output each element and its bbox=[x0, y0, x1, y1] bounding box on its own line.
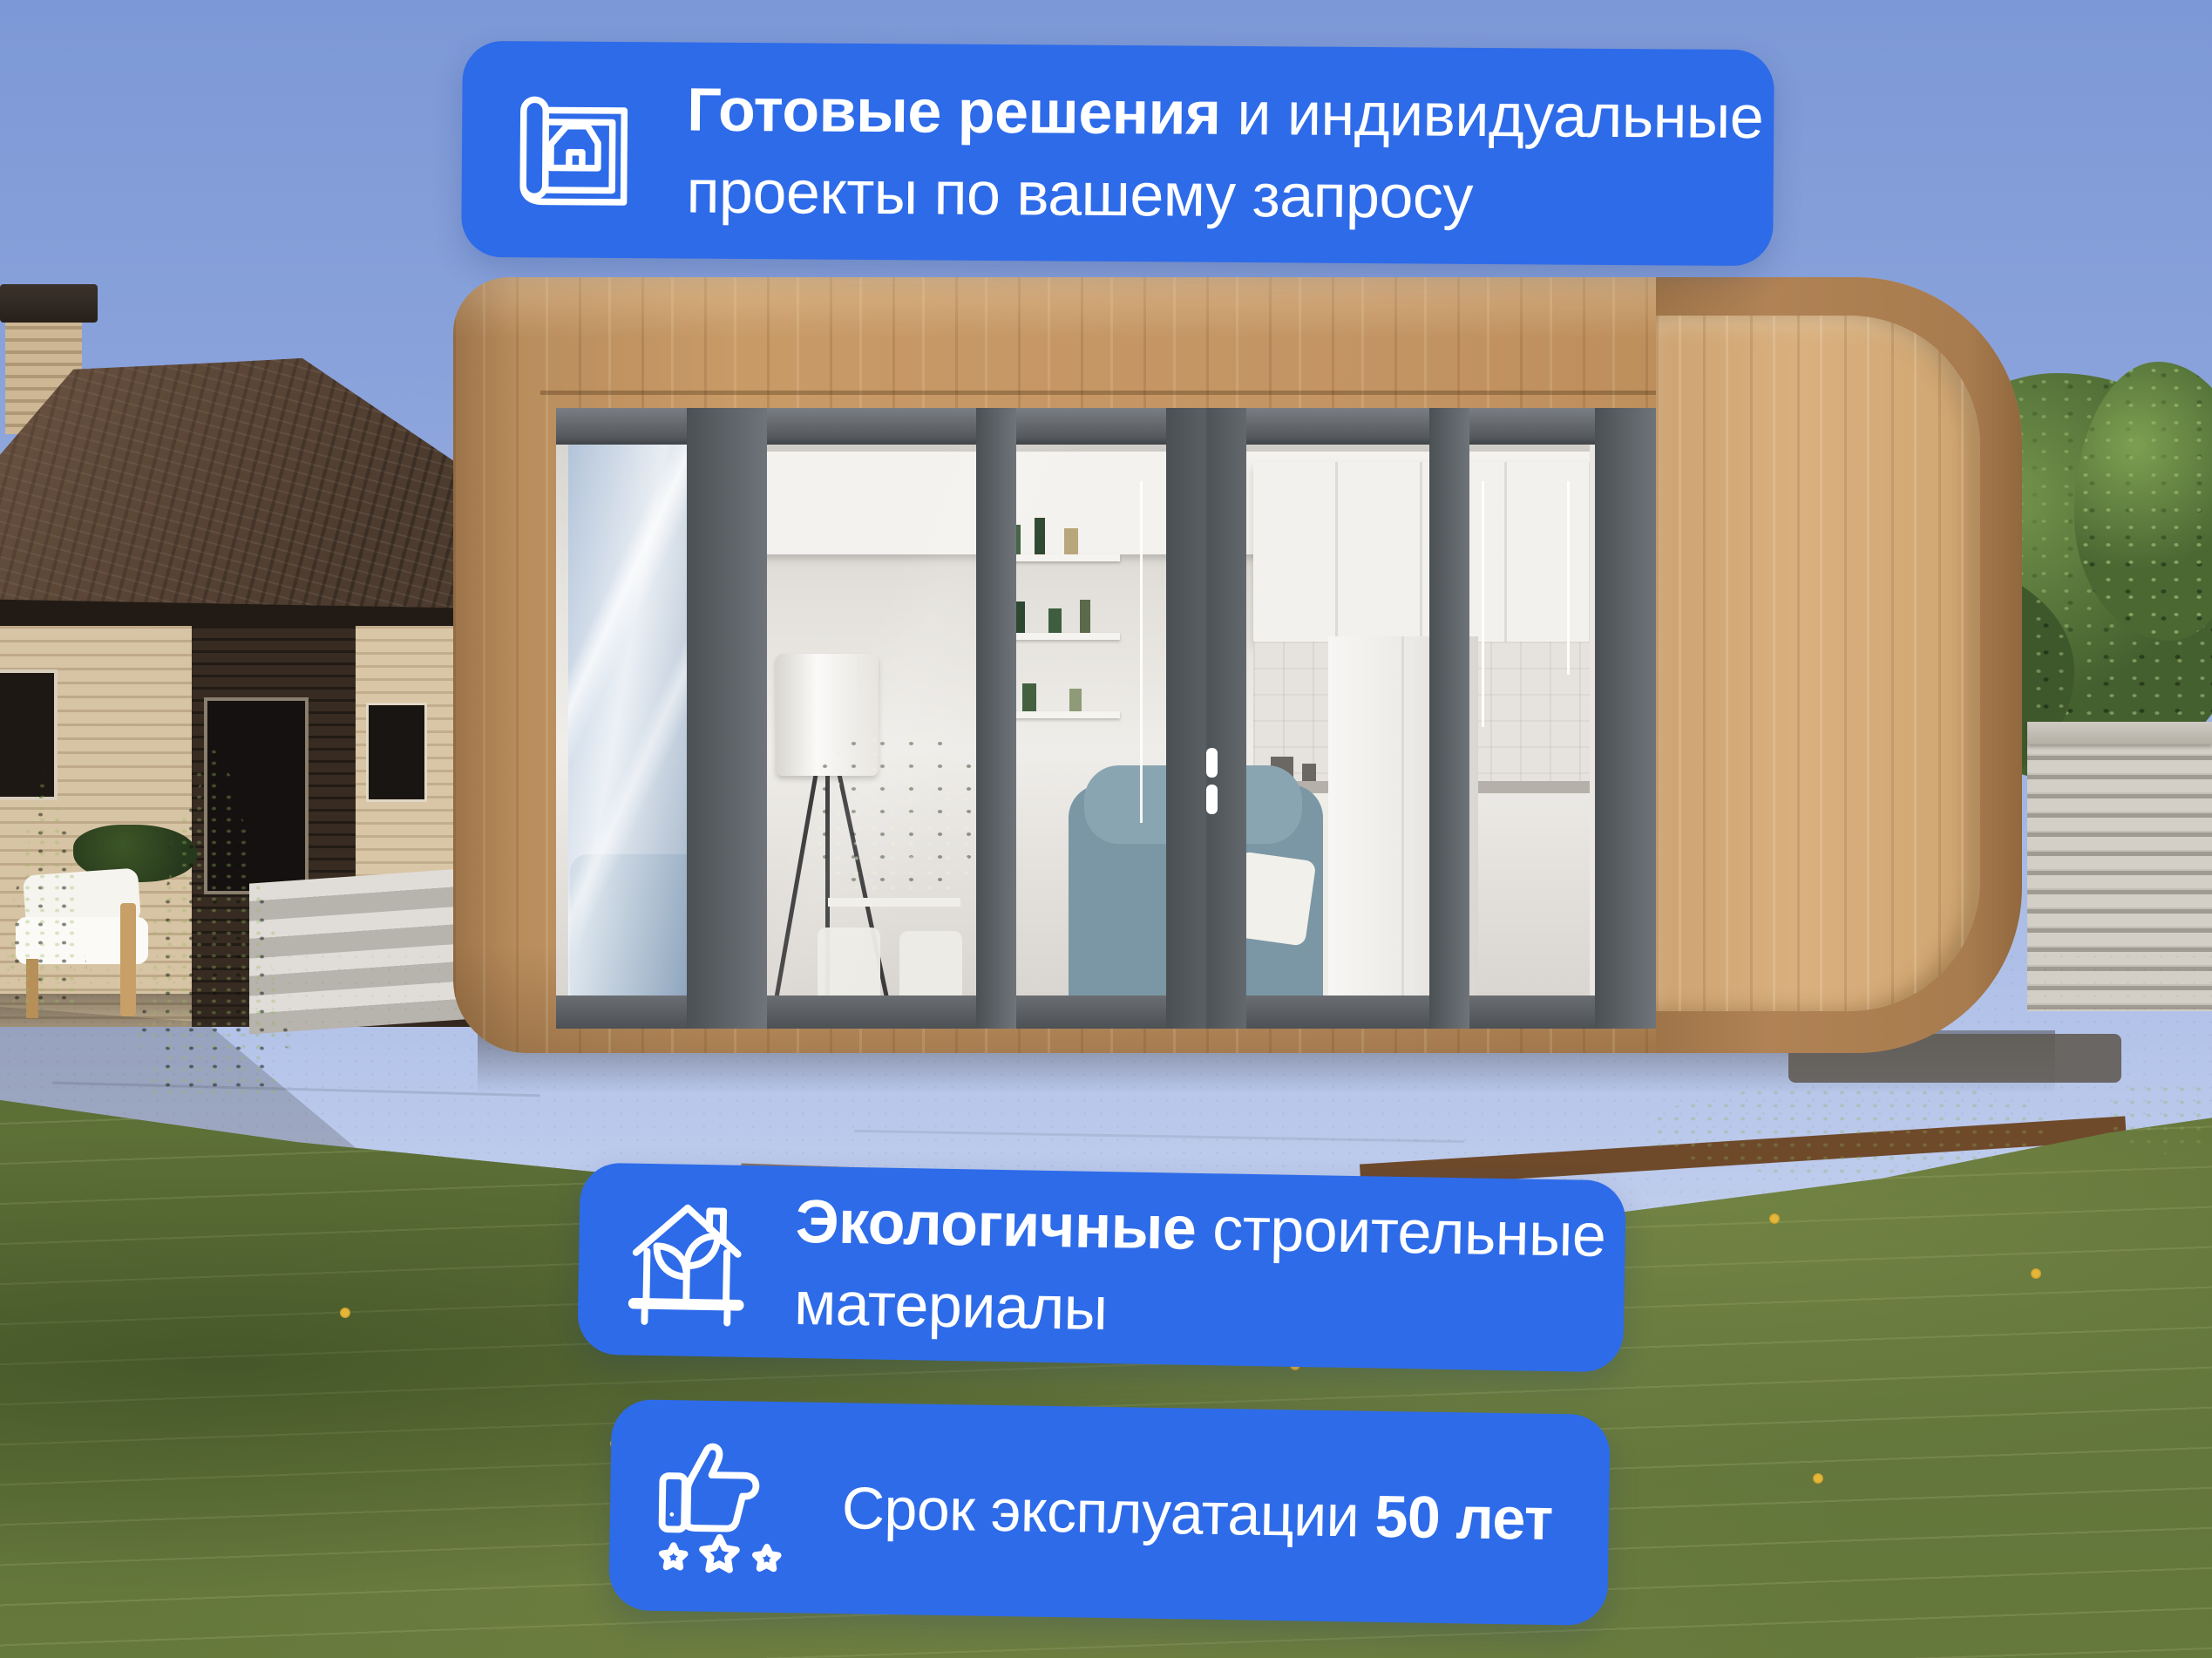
decor-bottle bbox=[1080, 600, 1090, 633]
badge-text: Экологичные строительные материалы bbox=[793, 1180, 1606, 1358]
sliding-door-stile bbox=[1166, 408, 1246, 1029]
fridge-seam bbox=[1401, 636, 1404, 1018]
door-handle bbox=[1206, 785, 1218, 814]
decor-plant-pot bbox=[1069, 689, 1082, 711]
fence-top-rail bbox=[2027, 722, 2212, 744]
cabin-rounded-end bbox=[1656, 277, 2022, 1053]
thumbs-up-stars-icon bbox=[609, 1430, 844, 1582]
badge-eco-materials: Экологичные строительные материалы bbox=[577, 1163, 1626, 1373]
badge-line-1: Срок эксплуатации 50 лет bbox=[841, 1467, 1553, 1560]
indoor-plant bbox=[811, 732, 995, 900]
chimney-cap bbox=[0, 284, 98, 323]
decor-bottle bbox=[1064, 528, 1078, 554]
blind-cord bbox=[1482, 481, 1484, 727]
badge-text: Готовые решения и индивидуальные проекты… bbox=[686, 69, 1763, 241]
dining-table bbox=[828, 898, 960, 907]
counter-item bbox=[1302, 764, 1316, 781]
kitchen-upper-cabinets bbox=[1253, 462, 1590, 642]
door-handle bbox=[1206, 748, 1218, 778]
dandelion bbox=[2031, 1268, 2041, 1279]
eco-house-plant-icon bbox=[578, 1190, 797, 1331]
blind-cord bbox=[1567, 481, 1570, 675]
badge-service-life: Срок эксплуатации 50 лет bbox=[608, 1399, 1611, 1626]
decor-plant-pot bbox=[1022, 683, 1036, 711]
dandelion bbox=[340, 1308, 350, 1318]
badge-ready-solutions: Готовые решения и индивидуальные проекты… bbox=[461, 41, 1774, 267]
corner-glass-reflection bbox=[568, 445, 687, 999]
garden-hedge bbox=[2107, 1083, 2212, 1154]
end-frame bbox=[1595, 408, 1656, 1029]
mullion bbox=[1429, 408, 1469, 1029]
bench-wood-arm bbox=[120, 903, 136, 1016]
promo-frame: Готовые решения и индивидуальные проекты… bbox=[0, 0, 2212, 1658]
badge-line-2: материалы bbox=[793, 1262, 1605, 1358]
wood-grain bbox=[1656, 316, 1980, 1011]
badge-line-1: Готовые решения и индивидуальные bbox=[687, 69, 1763, 159]
fascia-seam bbox=[540, 391, 1665, 395]
blind-cord bbox=[1140, 481, 1143, 823]
blueprint-house-icon bbox=[461, 84, 687, 216]
dandelion bbox=[1769, 1213, 1780, 1224]
glass-facade bbox=[556, 408, 1656, 1029]
badge-line-1: Экологичные строительные bbox=[795, 1180, 1606, 1276]
badge-text: Срок эксплуатации 50 лет bbox=[841, 1467, 1553, 1560]
cabin-end-wood-panel bbox=[1656, 316, 1980, 1011]
modular-cabin bbox=[453, 277, 2022, 1053]
corner-post bbox=[687, 408, 767, 1029]
decor-bottle bbox=[1048, 608, 1062, 633]
house-window bbox=[366, 703, 427, 802]
mullion bbox=[976, 408, 1016, 1029]
dandelion bbox=[1813, 1473, 1823, 1484]
decor-bottle bbox=[1035, 518, 1045, 554]
badge-line-2: проекты по вашему запросу bbox=[686, 151, 1762, 241]
